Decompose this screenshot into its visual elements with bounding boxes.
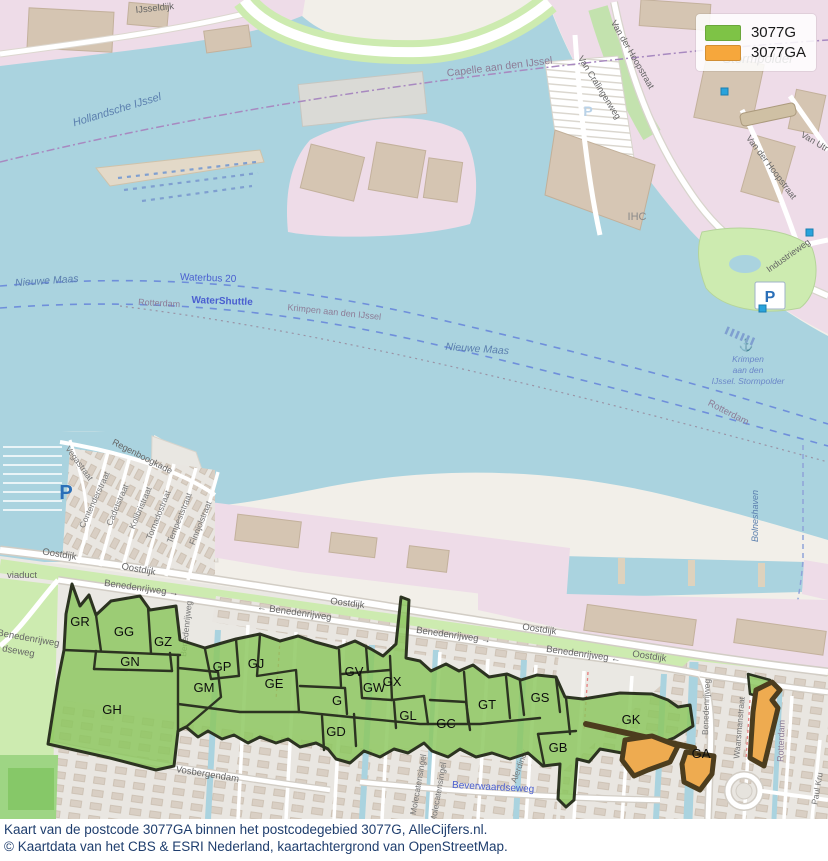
legend-swatch-green (705, 25, 741, 41)
parking-icon: P (583, 103, 592, 119)
place-label: aan den (733, 365, 764, 375)
region-label-gl: GL (399, 708, 416, 723)
legend-label: 3077G (751, 24, 796, 41)
region-label-gn: GN (120, 654, 140, 669)
region-label-gh: GH (102, 702, 122, 717)
region-label-gb: GB (549, 740, 568, 755)
water-label: Bolneshaven (750, 490, 760, 542)
region-label-gg: GG (114, 624, 134, 639)
region-label-gc: GC (436, 716, 456, 731)
region-label-gp: GP (213, 659, 232, 674)
place-label: Krimpen (732, 354, 764, 364)
place-label: IHC (628, 211, 647, 223)
region-label-g: G (332, 693, 342, 708)
caption-line-1: Kaart van de postcode 3077GA binnen het … (4, 822, 828, 839)
anchor-icon: ⚓ (739, 338, 754, 352)
map-canvas[interactable]: IJsseldijk Capelle aan den IJssel Hollan… (0, 0, 828, 819)
region-label-gs: GS (531, 690, 550, 705)
parking-icon: P (59, 482, 72, 504)
legend-label: 3077GA (751, 44, 806, 61)
region-label-gv: GV (345, 664, 364, 679)
region-label-gz: GZ (154, 634, 172, 649)
region-label-gd: GD (326, 724, 346, 739)
map-caption: Kaart van de postcode 3077GA binnen het … (0, 819, 828, 861)
region-label-ge: GE (265, 676, 284, 691)
region-label-gj: GJ (248, 656, 265, 671)
region-label-gk: GK (622, 712, 641, 727)
region-label-gr: GR (70, 614, 90, 629)
admin-label: Rotterdam (775, 720, 786, 762)
region-label-ga: GA (692, 746, 711, 761)
map-legend: 3077G 3077GA (696, 14, 816, 71)
region-label-gx: GX (383, 674, 402, 689)
caption-line-2: © Kaartdata van het CBS & ESRI Nederland… (4, 839, 828, 856)
screenshot-root: IJsseldijk Capelle aan den IJssel Hollan… (0, 0, 828, 861)
parking-icon: P (765, 289, 776, 306)
ferry-label: WaterShuttle (191, 295, 253, 308)
legend-item: 3077GA (705, 44, 806, 61)
legend-item: 3077G (705, 24, 806, 41)
legend-swatch-orange (705, 45, 741, 61)
region-label-gm: GM (194, 680, 215, 695)
street-label: viaduct (7, 570, 37, 581)
place-label: IJssel. Stormpolder (712, 376, 786, 386)
ferry-label: Waterbus 20 (180, 272, 237, 285)
region-label-gt: GT (478, 697, 496, 712)
street-label: Benedenrijweg (700, 678, 712, 735)
map-viewport[interactable]: IJsseldijk Capelle aan den IJssel Hollan… (0, 0, 828, 819)
